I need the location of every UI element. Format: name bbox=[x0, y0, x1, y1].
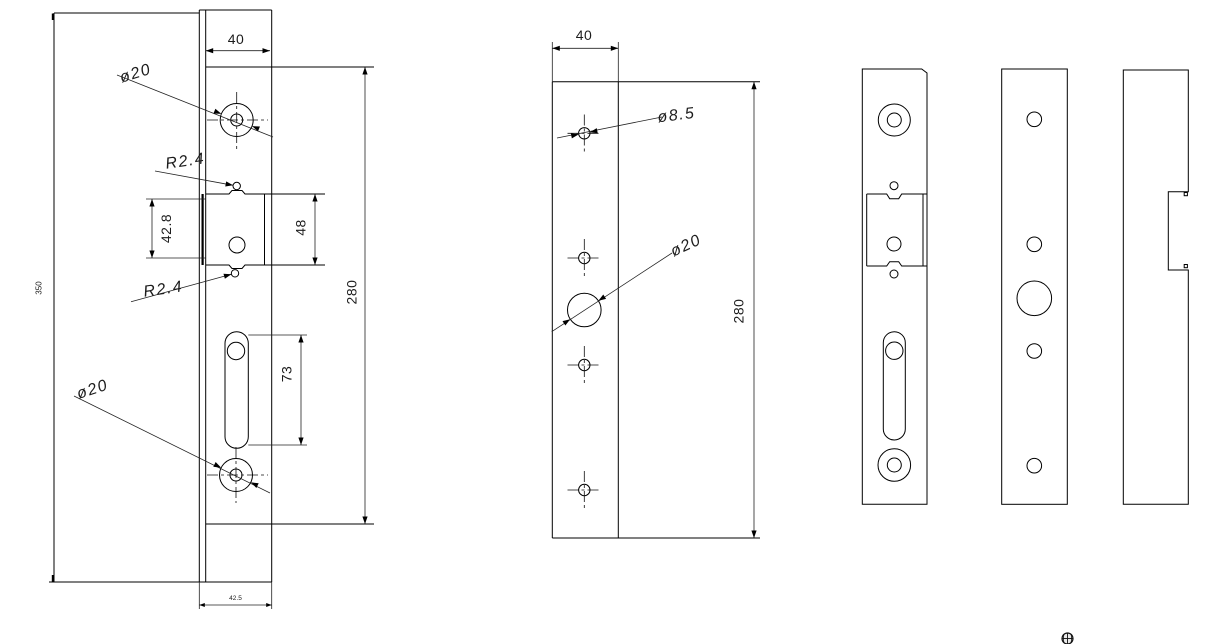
dim-280-arrow-bottom bbox=[362, 517, 367, 525]
keep-dim-280-arrow-bottom bbox=[751, 531, 756, 539]
keep-dim-40-arrow-right bbox=[611, 46, 619, 51]
part-keep-top-edge bbox=[867, 194, 927, 199]
part-notch-hole-top bbox=[890, 182, 898, 190]
callout-large-hole-label: ø20 bbox=[668, 231, 704, 260]
faceplate-part-outline bbox=[862, 69, 927, 504]
dim-350-tick-bottom bbox=[52, 575, 55, 582]
callout-screw-hole-label: ø8.5 bbox=[657, 105, 697, 127]
callout-notch-bottom-label: R2.4 bbox=[142, 278, 184, 300]
technical-drawing: 350 40 bbox=[0, 0, 1220, 644]
callout-top-hole-leader bbox=[117, 75, 273, 137]
cad-marker-icon bbox=[1062, 633, 1073, 644]
dim-280-arrow-top bbox=[362, 67, 367, 75]
part-slot-hole bbox=[886, 342, 903, 359]
dim-73-arrow-bottom bbox=[298, 438, 303, 446]
keep-cutout-bottom-edge bbox=[206, 265, 325, 269]
callout-notch-top-label: R2.4 bbox=[164, 150, 206, 172]
part-latch-hole bbox=[887, 237, 901, 251]
notch-hole-bottom bbox=[231, 270, 238, 277]
side-profile-view bbox=[1123, 70, 1188, 504]
dim-425-arrow-left bbox=[199, 603, 205, 607]
dim-40-label: 40 bbox=[228, 31, 245, 47]
dim-350-label: 350 bbox=[35, 281, 44, 295]
dim-350-tick-top bbox=[52, 14, 55, 21]
backplate-part-view bbox=[1002, 69, 1068, 504]
callout-notch-top-arrow bbox=[225, 181, 233, 187]
notch-hole-top bbox=[233, 182, 240, 189]
dim-73-label: 73 bbox=[279, 366, 295, 383]
backplate-hole-1 bbox=[1027, 112, 1042, 127]
dim-48-arrow-top bbox=[312, 194, 317, 202]
keep-dim-40-label: 40 bbox=[576, 27, 593, 43]
part-bottom-hole-outer bbox=[878, 449, 911, 482]
side-profile-notch-hole-bottom bbox=[1184, 265, 1187, 268]
side-profile-notch-hole-top bbox=[1184, 193, 1187, 196]
part-notch-hole-bottom bbox=[890, 270, 898, 278]
callout-screw-hole-arrow1 bbox=[571, 132, 579, 139]
slot-hole bbox=[227, 342, 244, 359]
backplate-large-hole bbox=[1017, 281, 1052, 316]
backplate-outline bbox=[1002, 69, 1068, 504]
backplate-hole-2 bbox=[1027, 237, 1042, 252]
side-profile-outline bbox=[1123, 70, 1188, 504]
callout-notch-bottom-arrow bbox=[223, 272, 232, 279]
dim-428-label: 42.8 bbox=[158, 214, 174, 243]
dim-280-label: 280 bbox=[344, 280, 360, 305]
part-keep-bottom-edge bbox=[867, 262, 927, 266]
dim-40-arrow-right bbox=[263, 48, 271, 53]
cad-drawing-canvas: 350 40 bbox=[0, 0, 1220, 644]
part-slot bbox=[883, 332, 905, 440]
keep-plate-view: 40 280 ø8.5 ø20 bbox=[552, 27, 760, 538]
callout-bottom-hole-label: ø20 bbox=[75, 377, 111, 403]
dim-40-arrow-left bbox=[206, 48, 214, 53]
part-top-hole-inner bbox=[887, 113, 901, 127]
dim-73-arrow-top bbox=[298, 335, 303, 343]
dim-425-label: 42.5 bbox=[229, 595, 242, 602]
dim-428-arrow-top bbox=[149, 199, 154, 207]
part-bottom-hole-inner bbox=[887, 458, 901, 472]
keep-dim-40-arrow-left bbox=[552, 46, 560, 51]
callout-bottom-hole-leader bbox=[74, 396, 270, 493]
backplate-hole-3 bbox=[1027, 344, 1042, 359]
callout-notch-top-leader bbox=[155, 171, 233, 185]
faceplate-part-view bbox=[862, 69, 927, 504]
callout-large-hole-leader bbox=[552, 253, 672, 332]
keep-dim-280-label: 280 bbox=[731, 299, 747, 324]
dim-48-label: 48 bbox=[293, 219, 309, 236]
dim-428-arrow-bottom bbox=[149, 251, 154, 259]
dim-425-arrow-right bbox=[266, 603, 272, 607]
part-top-hole-outer bbox=[878, 104, 910, 136]
latch-hole bbox=[229, 237, 245, 253]
keep-cutout-top-edge bbox=[206, 191, 325, 195]
dim-48-arrow-bottom bbox=[312, 258, 317, 266]
keep-dim-280-arrow-top bbox=[751, 82, 756, 90]
backplate-hole-4 bbox=[1027, 458, 1042, 473]
assembly-front-view: 350 40 bbox=[35, 10, 375, 609]
